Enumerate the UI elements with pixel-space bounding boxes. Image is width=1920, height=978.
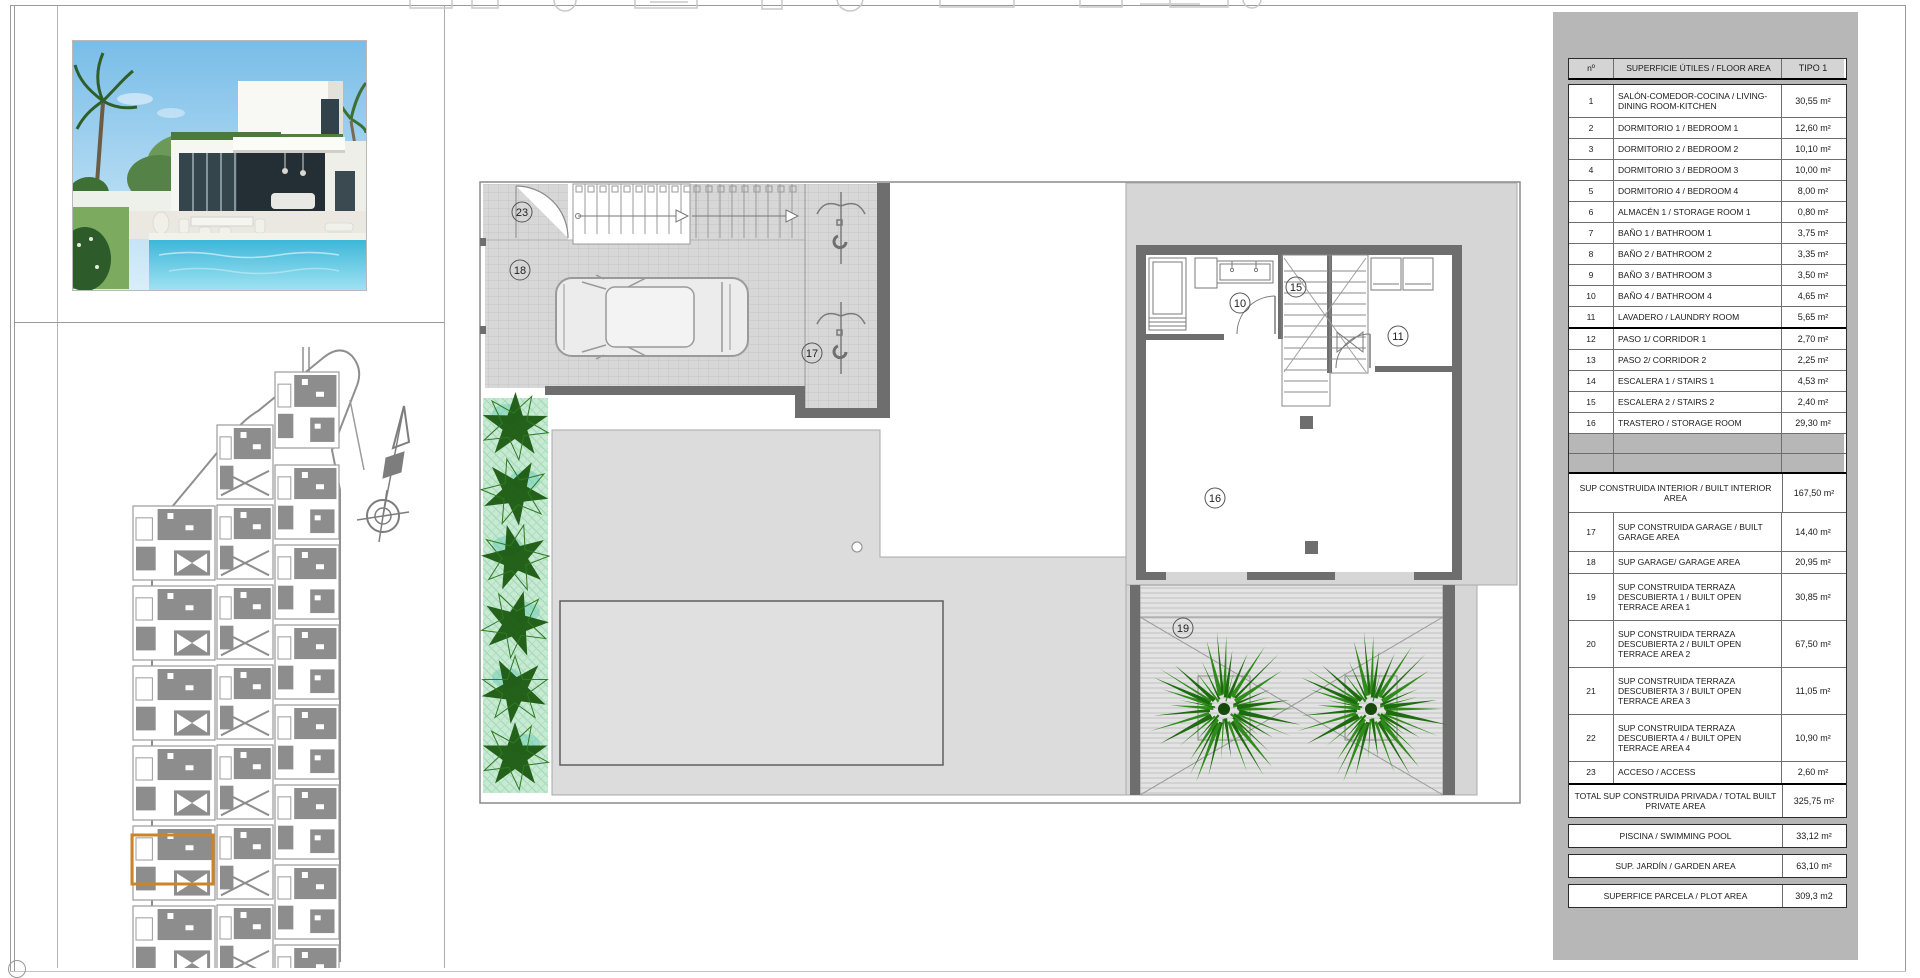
room-number: 2 <box>1569 118 1613 138</box>
svg-text:19: 19 <box>1177 623 1189 635</box>
table-section: SUP. JARDÍN / GARDEN AREA63,10 m² <box>1568 854 1847 878</box>
room-name: DORMITORIO 2 / BEDROOM 2 <box>1613 139 1781 159</box>
sheet-border-right <box>1905 5 1906 971</box>
room-area: 12,60 m² <box>1781 118 1844 138</box>
panel-divider-line <box>444 5 445 968</box>
summary-number: 23 <box>1569 762 1613 783</box>
summary-number: 21 <box>1569 668 1613 714</box>
svg-text:11: 11 <box>1392 331 1403 343</box>
summary-area: 30,85 m² <box>1781 574 1844 620</box>
summary-number: 18 <box>1569 552 1613 573</box>
column <box>1305 541 1318 554</box>
room-number: 8 <box>1569 244 1613 264</box>
room-number: 6 <box>1569 202 1613 222</box>
room-number: 7 <box>1569 223 1613 243</box>
room-area: 3,75 m² <box>1781 223 1844 243</box>
room-number: 13 <box>1569 350 1613 370</box>
room-name: ALMACÉN 1 / STORAGE ROOM 1 <box>1613 202 1781 222</box>
room-name: LAVADERO / LAUNDRY ROOM <box>1613 307 1781 327</box>
room-area: 29,30 m² <box>1781 413 1844 433</box>
room-name: BAÑO 1 / BATHROOM 1 <box>1613 223 1781 243</box>
room-number: 9 <box>1569 265 1613 285</box>
room-name: SALÓN-COMEDOR-COCINA / LIVING-DINING ROO… <box>1613 85 1781 117</box>
summary-area: 14,40 m² <box>1781 513 1844 551</box>
col-header-no: nº <box>1569 59 1613 78</box>
extra-area: 309,3 m2 <box>1782 885 1845 907</box>
table-cell <box>1613 454 1781 472</box>
svg-text:16: 16 <box>1209 493 1221 505</box>
summary-name: SUP CONSTRUIDA TERRAZA DESCUBIERTA 3 / B… <box>1613 668 1781 714</box>
room-area: 3,35 m² <box>1781 244 1844 264</box>
summary-name: SUP GARAGE/ GARAGE AREA <box>1613 552 1781 573</box>
svg-text:15: 15 <box>1290 282 1302 294</box>
table-cell <box>1569 434 1613 453</box>
room-area: 2,70 m² <box>1781 329 1844 349</box>
room-number: 3 <box>1569 139 1613 159</box>
table-cell <box>1569 454 1613 472</box>
svg-text:18: 18 <box>514 265 526 277</box>
room-name: BAÑO 4 / BATHROOM 4 <box>1613 286 1781 306</box>
summary-area: 20,95 m² <box>1781 552 1844 573</box>
table-cell <box>1781 434 1844 453</box>
col-header-name: SUPERFICIE ÚTILES / FLOOR AREA <box>1613 59 1781 78</box>
room-area: 0,80 m² <box>1781 202 1844 222</box>
adjacent-plan-cutoff <box>380 0 1280 15</box>
summary-area: 2,60 m² <box>1781 762 1844 783</box>
summary-area: 11,05 m² <box>1781 668 1844 714</box>
summary-name: SUP CONSTRUIDA GARAGE / BUILT GARAGE ARE… <box>1613 513 1781 551</box>
summary-number: 17 <box>1569 513 1613 551</box>
pool-outline <box>560 601 943 765</box>
room-area: 8,00 m² <box>1781 181 1844 201</box>
house-plan <box>1136 245 1462 580</box>
room-name: DORMITORIO 3 / BEDROOM 3 <box>1613 160 1781 180</box>
vegetation-strip <box>481 392 549 793</box>
room-name: BAÑO 3 / BATHROOM 3 <box>1613 265 1781 285</box>
floor-area-table: nºSUPERFICIE ÚTILES / FLOOR AREATIPO 11S… <box>1568 58 1847 908</box>
photo-pool <box>149 240 366 290</box>
summary-name: TOTAL SUP CONSTRUIDA PRIVADA / TOTAL BUI… <box>1569 785 1782 817</box>
room-number: 14 <box>1569 371 1613 391</box>
column <box>1300 416 1313 429</box>
sheet-border-left-inner <box>14 5 15 971</box>
terrace <box>1130 585 1455 795</box>
drain-circle <box>852 542 862 552</box>
site-plan-units <box>133 372 339 968</box>
summary-name: SUP CONSTRUIDA INTERIOR / BUILT INTERIOR… <box>1569 474 1782 512</box>
sheet-border-left-outer <box>10 5 11 971</box>
room-number: 12 <box>1569 329 1613 349</box>
room-number: 11 <box>1569 307 1613 327</box>
room-name: DORMITORIO 1 / BEDROOM 1 <box>1613 118 1781 138</box>
room-number: 10 <box>1569 286 1613 306</box>
room-name: BAÑO 2 / BATHROOM 2 <box>1613 244 1781 264</box>
room-name: PASO 1/ CORRIDOR 1 <box>1613 329 1781 349</box>
room-name: ESCALERA 1 / STAIRS 1 <box>1613 371 1781 391</box>
room-area: 4,53 m² <box>1781 371 1844 391</box>
table-section: nºSUPERFICIE ÚTILES / FLOOR AREATIPO 1 <box>1568 58 1847 80</box>
villa-photo-render <box>72 40 367 291</box>
room-area: 30,55 m² <box>1781 85 1844 117</box>
room-area: 10,10 m² <box>1781 139 1844 159</box>
table-section: SUPERFICE PARCELA / PLOT AREA309,3 m2 <box>1568 884 1847 908</box>
extra-name: SUPERFICE PARCELA / PLOT AREA <box>1569 885 1782 907</box>
extra-area: 33,12 m² <box>1782 825 1845 847</box>
sheet-border-bottom <box>10 971 1906 972</box>
room-number: 15 <box>1569 392 1613 412</box>
room-name: TRASTERO / STORAGE ROOM <box>1613 413 1781 433</box>
svg-text:17: 17 <box>806 348 818 360</box>
extra-name: PISCINA / SWIMMING POOL <box>1569 825 1782 847</box>
main-floor-plan: 23 18 17 10 15 11 16 19 <box>478 176 1523 808</box>
summary-area: 10,90 m² <box>1781 715 1844 761</box>
architectural-sheet: { "document": { "sheet_type": "floor-pla… <box>0 0 1920 976</box>
room-name: ESCALERA 2 / STAIRS 2 <box>1613 392 1781 412</box>
summary-area: 167,50 m² <box>1782 474 1845 512</box>
room-area: 4,65 m² <box>1781 286 1844 306</box>
site-plan <box>88 330 428 968</box>
svg-text:23: 23 <box>516 207 528 219</box>
north-arrow-icon <box>357 406 409 542</box>
summary-number: 20 <box>1569 621 1613 667</box>
table-section: 1SALÓN-COMEDOR-COCINA / LIVING-DINING RO… <box>1568 84 1847 818</box>
table-section: PISCINA / SWIMMING POOL33,12 m² <box>1568 824 1847 848</box>
summary-name: ACCESO / ACCESS <box>1613 762 1781 783</box>
room-area: 2,40 m² <box>1781 392 1844 412</box>
panel-margin-line <box>57 5 58 968</box>
room-name: PASO 2/ CORRIDOR 2 <box>1613 350 1781 370</box>
extra-area: 63,10 m² <box>1782 855 1845 877</box>
room-name: DORMITORIO 4 / BEDROOM 4 <box>1613 181 1781 201</box>
table-cell <box>1613 434 1781 453</box>
room-area: 10,00 m² <box>1781 160 1844 180</box>
left-panel-divider <box>14 322 444 323</box>
extra-name: SUP. JARDÍN / GARDEN AREA <box>1569 855 1782 877</box>
room-number: 4 <box>1569 160 1613 180</box>
col-header-type: TIPO 1 <box>1781 59 1844 78</box>
table-cell <box>1781 454 1844 472</box>
summary-name: SUP CONSTRUIDA TERRAZA DESCUBIERTA 2 / B… <box>1613 621 1781 667</box>
summary-area: 67,50 m² <box>1781 621 1844 667</box>
summary-name: SUP CONSTRUIDA TERRAZA DESCUBIERTA 4 / B… <box>1613 715 1781 761</box>
room-number: 16 <box>1569 413 1613 433</box>
room-number: 5 <box>1569 181 1613 201</box>
summary-number: 22 <box>1569 715 1613 761</box>
room-area: 3,50 m² <box>1781 265 1844 285</box>
room-area: 5,65 m² <box>1781 307 1844 327</box>
summary-name: SUP CONSTRUIDA TERRAZA DESCUBIERTA 1 / B… <box>1613 574 1781 620</box>
car-top-view <box>556 275 748 359</box>
summary-area: 325,75 m² <box>1782 785 1845 817</box>
room-number: 1 <box>1569 85 1613 117</box>
svg-text:10: 10 <box>1234 298 1246 310</box>
photo-pool-edge <box>149 233 366 240</box>
garage-area <box>480 183 890 418</box>
summary-number: 19 <box>1569 574 1613 620</box>
room-area: 2,25 m² <box>1781 350 1844 370</box>
sheet-corner-mark <box>8 960 26 978</box>
